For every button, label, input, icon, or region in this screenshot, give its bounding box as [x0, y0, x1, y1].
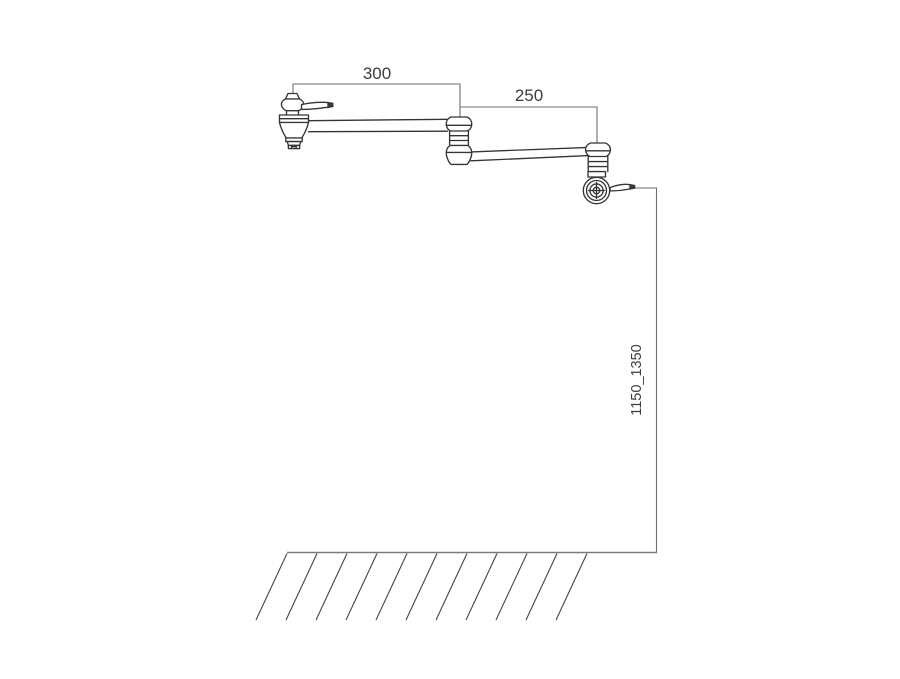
- valve-bell-body: [280, 123, 309, 139]
- elbow-upper-knuckle: [446, 117, 471, 131]
- drawing-canvas: 300 250 1150_1350: [0, 0, 900, 679]
- elbow-lower-knuckle: [446, 145, 471, 164]
- spout-outlet: [583, 177, 609, 203]
- faucet-drawing: [280, 94, 635, 204]
- dimension-300-lines: [293, 84, 460, 117]
- valve-cap: [286, 94, 300, 100]
- dimension-250-label: 250: [515, 86, 543, 105]
- floor-hatching: [256, 553, 657, 621]
- dimension-250: 250: [460, 86, 597, 144]
- elbow-joint: [446, 117, 471, 164]
- spout-handle: [610, 184, 635, 191]
- pot-filler-dimension-drawing: 300 250 1150_1350: [0, 0, 900, 679]
- dimension-height: 1150_1350: [629, 188, 657, 552]
- right-lever-tip: [630, 185, 635, 190]
- spout-joint: [586, 143, 611, 177]
- swing-arm-2: [471, 147, 589, 160]
- dimension-300-label: 300: [363, 64, 391, 83]
- left-lever-tip: [328, 102, 333, 107]
- swing-arm-1: [309, 119, 449, 131]
- left-lever-handle: [302, 102, 329, 109]
- right-lever-handle: [610, 184, 630, 191]
- spout-collar: [588, 157, 608, 172]
- hatch-lines: [256, 554, 587, 621]
- spout-flange: [588, 172, 606, 177]
- dimension-height-label: 1150_1350: [629, 344, 645, 416]
- valve-bulb: [281, 99, 303, 111]
- arm1-lines: [309, 119, 449, 131]
- elbow-collar: [450, 131, 469, 145]
- arm2-lines: [471, 147, 589, 160]
- spout-knuckle: [586, 143, 611, 157]
- dimension-250-lines: [460, 107, 597, 144]
